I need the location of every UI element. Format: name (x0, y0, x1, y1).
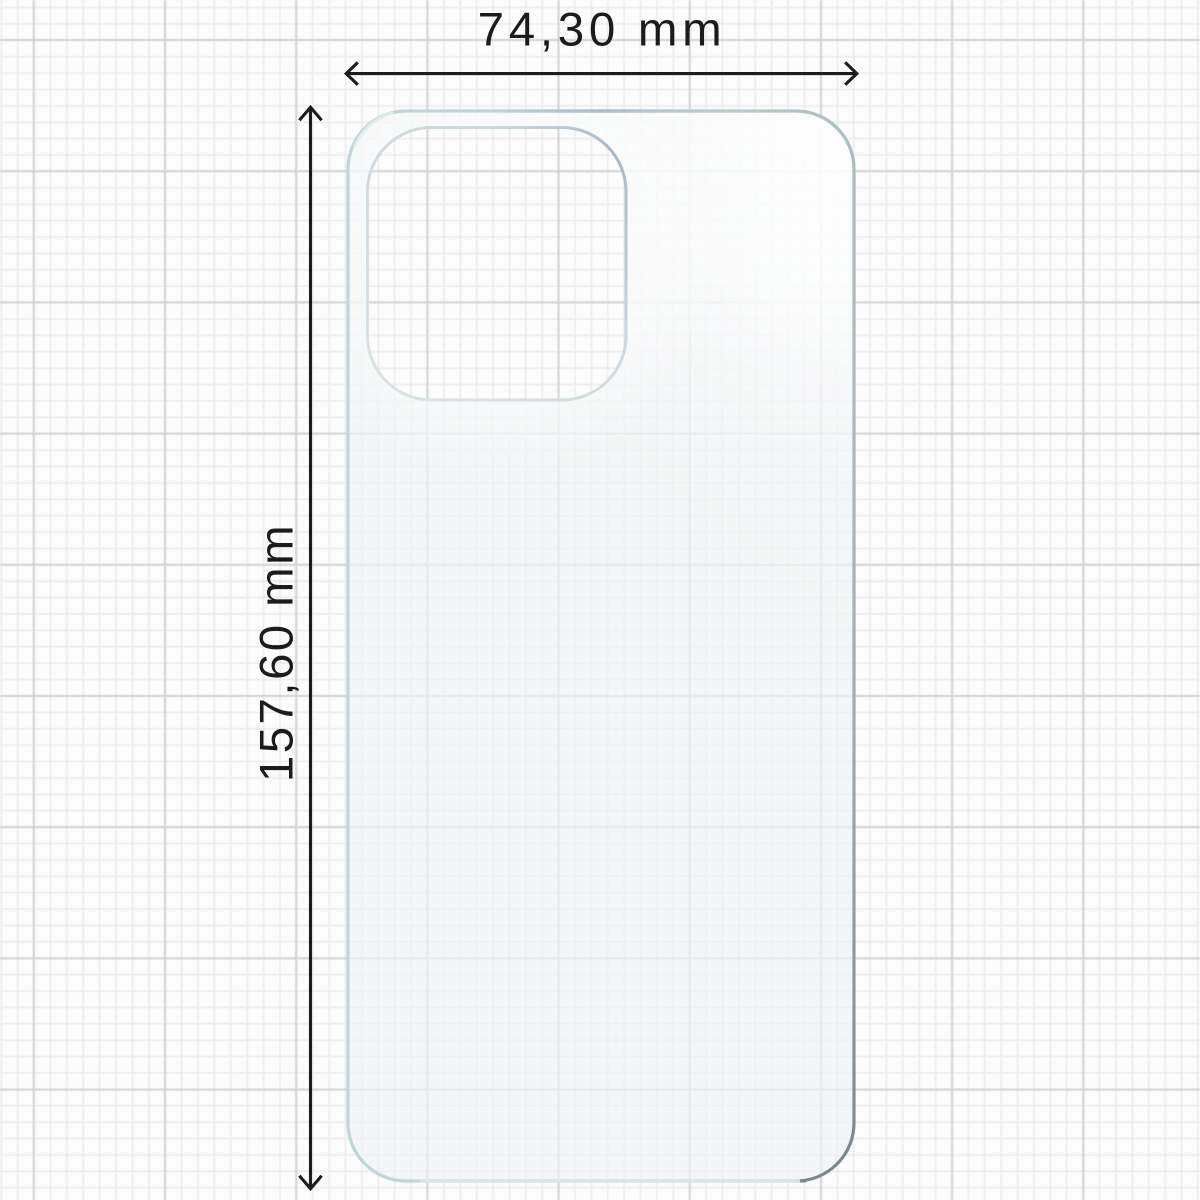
svg-text:74,30 mm: 74,30 mm (478, 4, 727, 57)
svg-text:157,60 mm: 157,60 mm (251, 523, 304, 782)
